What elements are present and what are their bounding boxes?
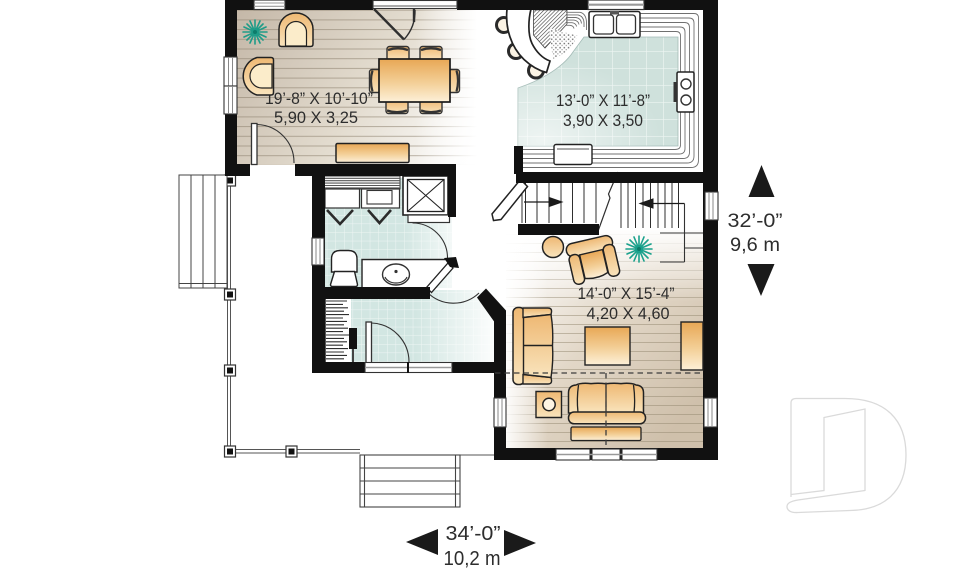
svg-text:3,90 X 3,50: 3,90 X 3,50 (563, 112, 643, 130)
svg-text:5,90 X 3,25: 5,90 X 3,25 (274, 109, 358, 127)
svg-text:19’-8” X 10’-10”: 19’-8” X 10’-10” (265, 90, 373, 108)
svg-text:9,6 m: 9,6 m (730, 235, 780, 256)
svg-text:13’-0” X 11’-8”: 13’-0” X 11’-8” (556, 92, 650, 110)
svg-text:10,2 m: 10,2 m (444, 548, 501, 569)
svg-text:32’-0”: 32’-0” (728, 211, 783, 232)
svg-text:14’-0” X 15’-4”: 14’-0” X 15’-4” (578, 285, 675, 303)
svg-text:4,20 X 4,60: 4,20 X 4,60 (587, 305, 670, 323)
svg-text:34’-0”: 34’-0” (446, 523, 501, 545)
